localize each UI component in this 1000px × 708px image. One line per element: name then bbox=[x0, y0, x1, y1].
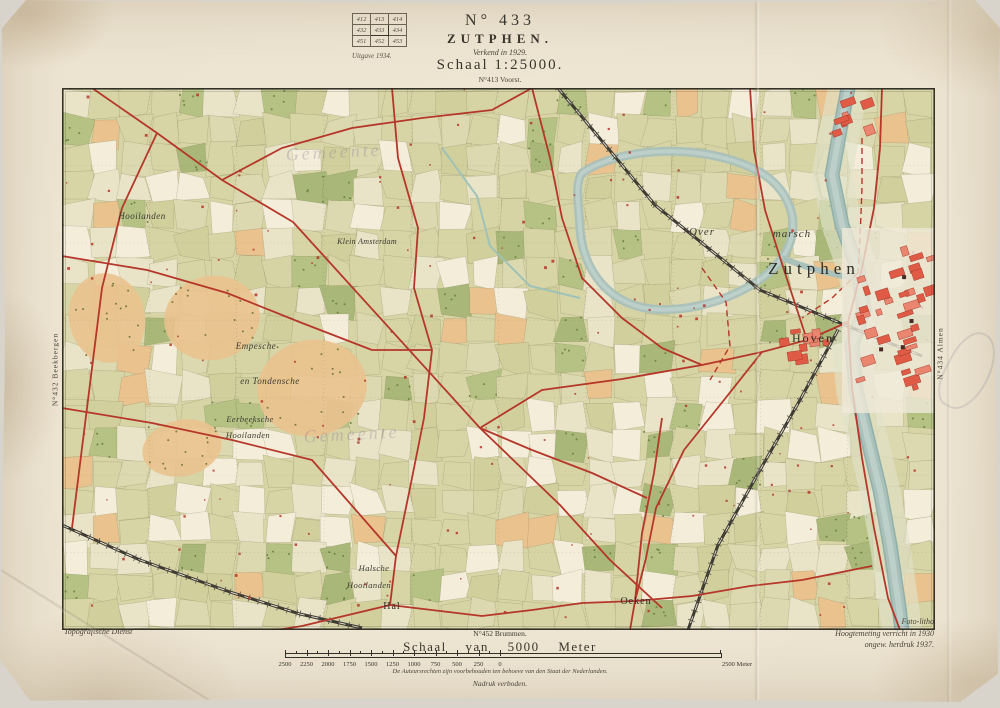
map-label-hooilanden: Hooilanden bbox=[225, 430, 270, 440]
map-label-halsche: Halsche bbox=[358, 563, 390, 573]
copyright-line: De Auteursrechten zijn voorbehouden ten … bbox=[0, 668, 1000, 675]
paper-crease bbox=[754, 0, 760, 702]
adjacent-sheet-east: N°434 Almen bbox=[936, 279, 945, 429]
reprint-note: ongew. herdruk 1937. bbox=[835, 639, 934, 651]
map-label-oeken: Oeken bbox=[620, 596, 651, 607]
map-label-marsch: marsch bbox=[773, 228, 811, 240]
adjacent-sheet-north: N°413 Voorst. bbox=[0, 75, 1000, 84]
litho-note: Foto-litho bbox=[835, 616, 934, 628]
map-label-hoven: Hoven bbox=[792, 331, 834, 345]
scale-label: Schaal 1:25000. bbox=[0, 57, 1000, 74]
map-label-eerbeeksche: Eerbeeksche bbox=[225, 414, 273, 424]
map-label-en-tondensche: en Tondensche bbox=[240, 376, 299, 386]
map-canvas: ZutphenHovenOvermarschHooilandenEmpesche… bbox=[62, 88, 935, 630]
reprint-forbidden-line: Nadruk verboden. bbox=[0, 679, 1000, 688]
map-sheet-paper: 412413414432433434451452453 Uitgave 1934… bbox=[0, 0, 1000, 702]
adjacent-sheet-west: N°432 Beekbergen bbox=[51, 295, 60, 445]
map-label-hooilanden: Hooilanden bbox=[346, 580, 391, 590]
map-label-klein-amsterdam: Klein Amsterdam bbox=[336, 237, 397, 246]
surveyed-note: Verkend in 1929. bbox=[0, 48, 1000, 57]
map-label-zutphen: Zutphen bbox=[768, 259, 860, 278]
map-label-empesche: Empesche bbox=[235, 341, 276, 351]
sheet-title: ZUTPHEN. bbox=[0, 31, 1000, 47]
paper-crease bbox=[946, 0, 952, 702]
colophon: Foto-litho Hoogtemeting verricht in 1930… bbox=[835, 616, 934, 651]
map-label-hooilanden: Hooilanden bbox=[117, 211, 166, 221]
map-label-over: Over bbox=[689, 226, 715, 238]
sheet-number: N° 433 bbox=[0, 12, 1000, 30]
height-survey-note: Hoogtemeting verricht in 1930 bbox=[835, 628, 934, 640]
map-label-hal: Hal bbox=[383, 601, 400, 612]
